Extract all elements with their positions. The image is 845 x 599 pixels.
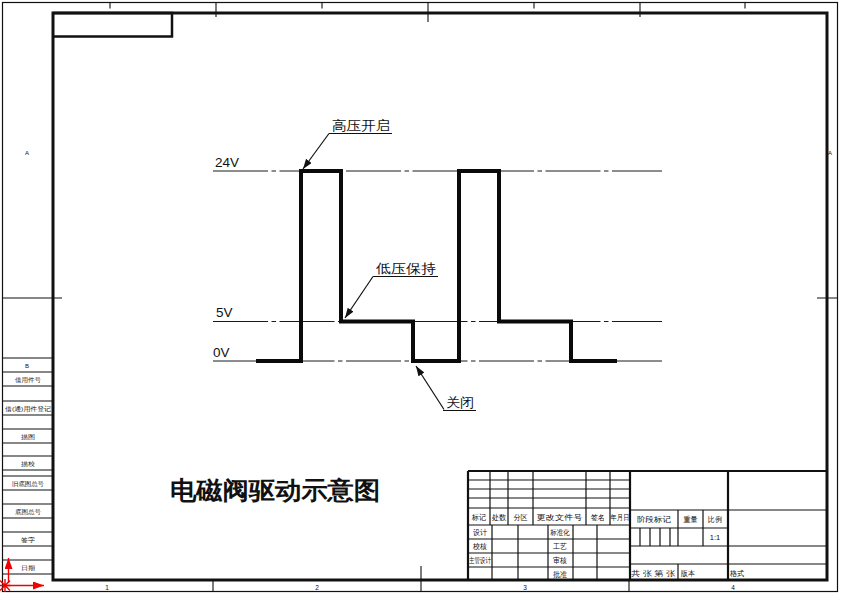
drawing-title: 电磁阀驱动示意图 (170, 476, 380, 504)
titleblock-rev-sign: 签名 (591, 513, 605, 522)
titleblock-check: 校核 (472, 542, 487, 551)
titleblock-stage-mark: 阶段标记 (637, 515, 672, 524)
titleblock-standardization: 标准化 (550, 528, 570, 537)
margin-cell-label: 日期 (21, 565, 35, 572)
titleblock-rev-mark: 标记 (471, 513, 486, 522)
margin-cell-label: 描校 (21, 461, 35, 468)
titleblock-design: 设计 (473, 528, 487, 537)
margin-cell-label: 描图 (21, 434, 35, 441)
zone-letter: A (828, 150, 832, 156)
voltage-label-0v: 0V (213, 345, 230, 360)
titleblock-scale: 比例 (708, 515, 722, 524)
titleblock-approve: 批准 (553, 570, 567, 579)
voltage-label-5v: 5V (216, 305, 233, 320)
titleblock-rev-zone: 分区 (514, 513, 528, 522)
margin-cell-label: 旧底图总号 (12, 480, 44, 488)
drawing-sheet: 1 2 3 4 A B A 借用件号 借(通)用件登记 描图 描校 旧底图总号 … (0, 0, 845, 599)
titleblock-rev-count: 处数 (491, 513, 506, 522)
titleblock-scale-value: 1:1 (710, 533, 720, 542)
voltage-label-24v: 24V (215, 155, 239, 170)
margin-cell-label: 借(通)用件登记 (5, 405, 51, 413)
zone-letter: B (25, 363, 29, 369)
margin-cell-label: 签字 (21, 536, 35, 543)
titleblock-rev-docno: 更改文件号 (537, 513, 584, 522)
zone-number: 3 (523, 584, 527, 591)
margin-cell-label: 借用件号 (15, 377, 41, 384)
titleblock-rev-date: 年月日 (610, 513, 630, 522)
titleblock-chief-design: 主管设计 (469, 556, 491, 565)
titleblock-audit: 审核 (553, 556, 567, 565)
zone-number: 4 (731, 584, 735, 591)
zone-letter: A (25, 150, 29, 156)
annotation-label: 关闭 (446, 395, 474, 410)
annotation-label: 低压保持 (375, 261, 436, 276)
titleblock-format: 格式 (729, 569, 744, 578)
titleblock-process: 工艺 (553, 542, 567, 551)
titleblock-version: 版本 (680, 569, 695, 578)
titleblock-sheet-count: 共 张 第 张 (631, 569, 676, 578)
zone-number: 1 (105, 584, 109, 591)
sheet-background (0, 0, 845, 599)
annotation-label: 高压开启 (332, 118, 390, 133)
margin-cell-label: 底图总号 (15, 508, 41, 516)
titleblock-weight: 重量 (684, 515, 698, 524)
zone-number: 2 (315, 584, 319, 591)
